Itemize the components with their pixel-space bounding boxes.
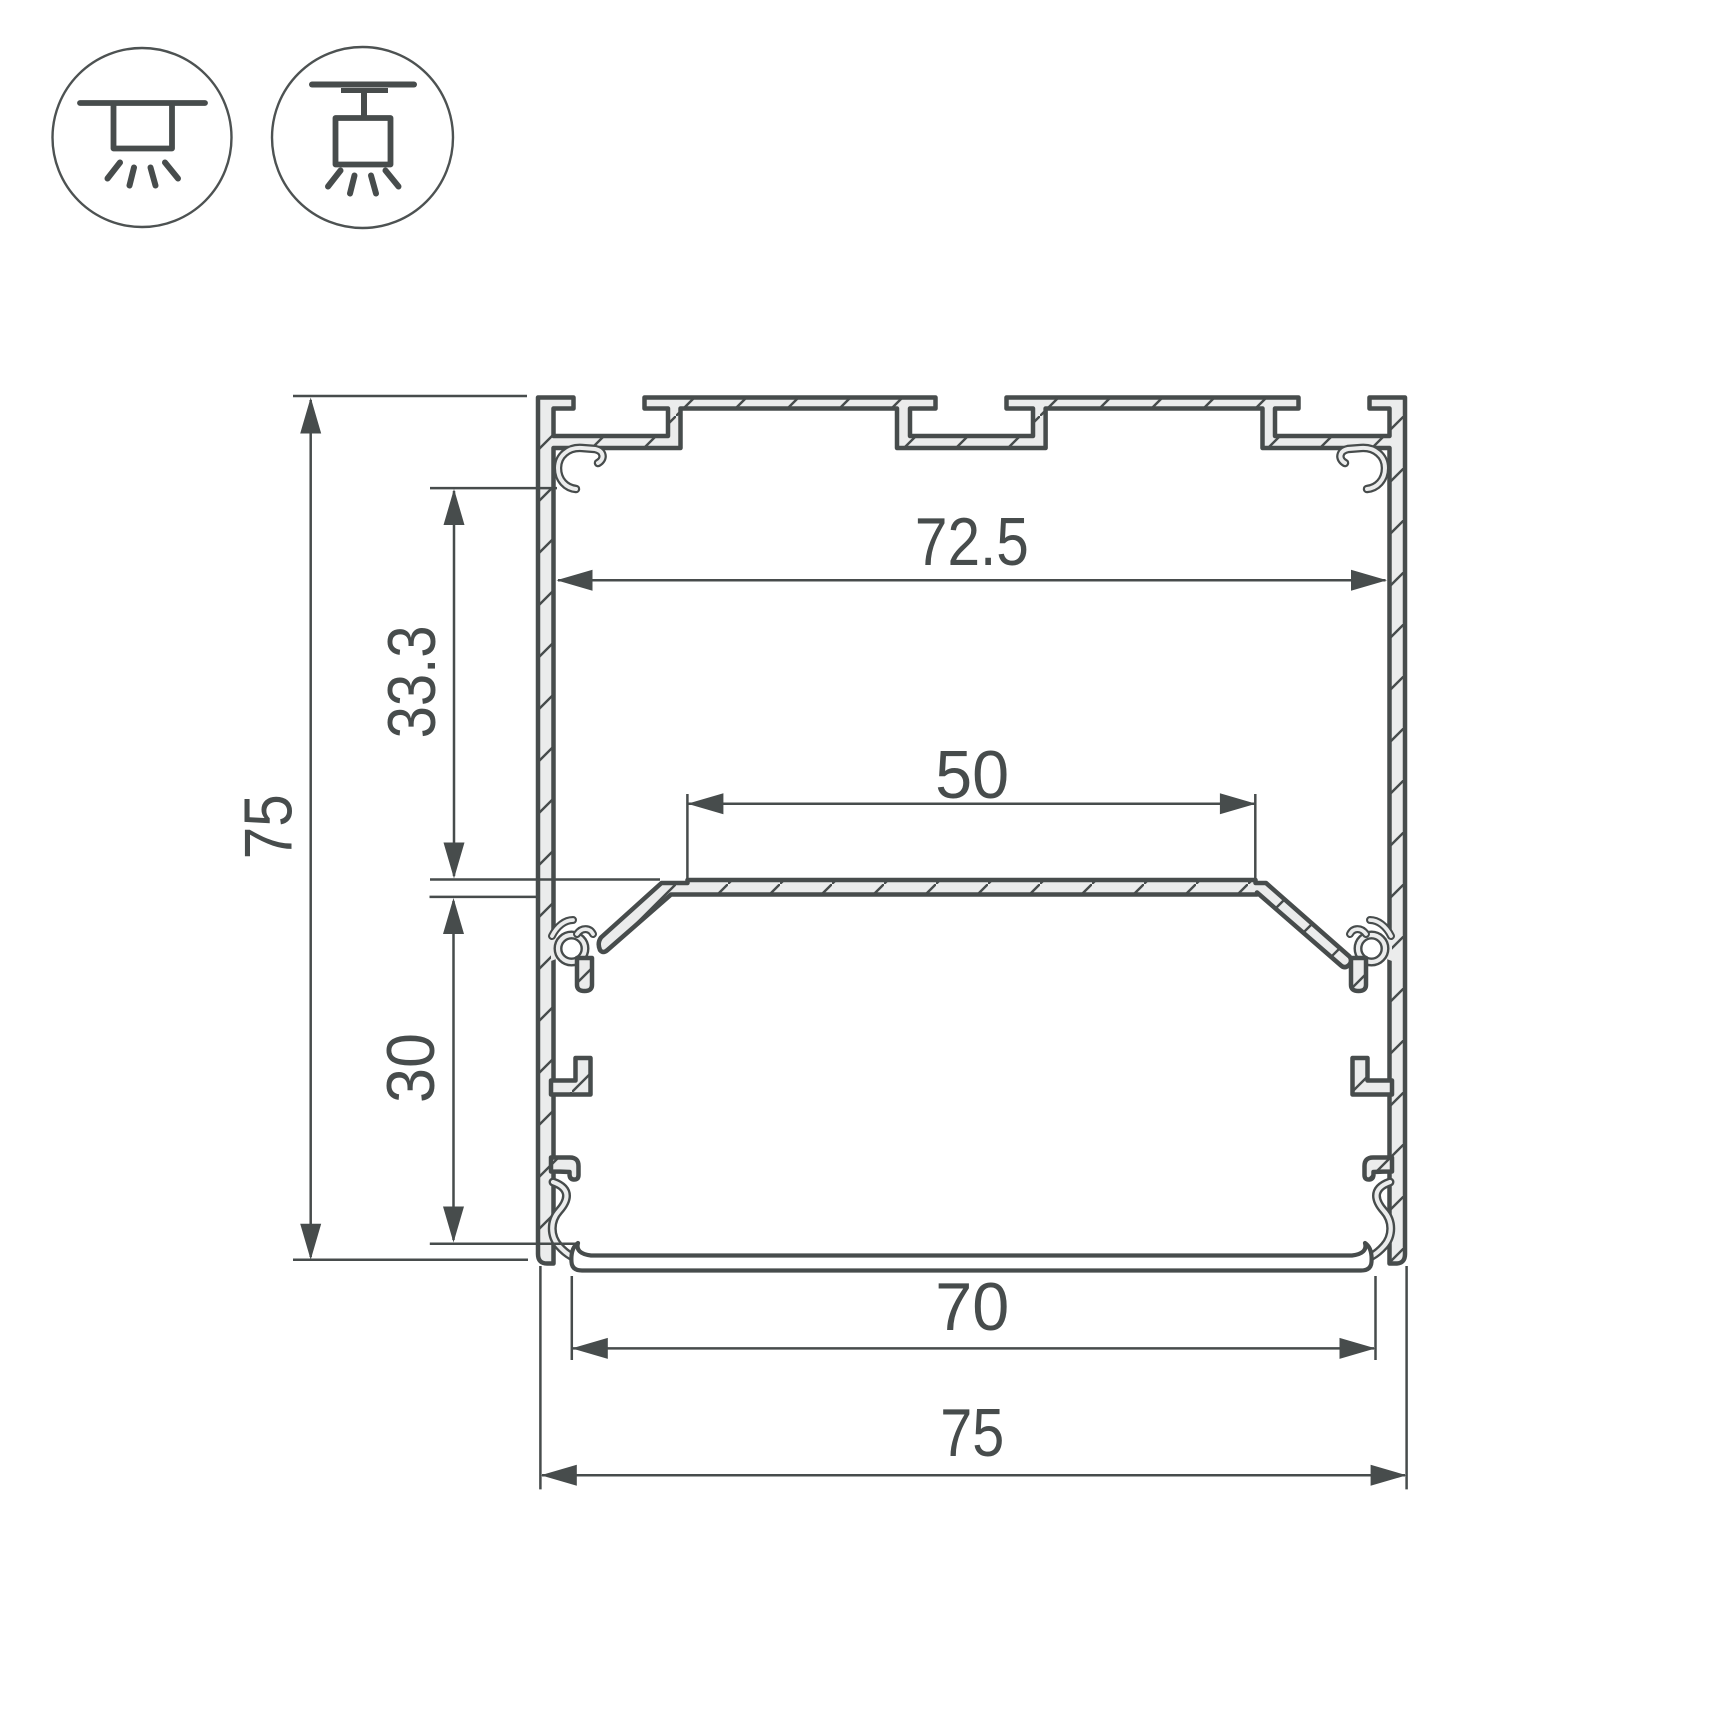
svg-text:33.3: 33.3 [374, 625, 450, 738]
svg-text:50: 50 [935, 737, 1009, 813]
svg-text:75: 75 [940, 1395, 1004, 1471]
svg-text:72.5: 72.5 [915, 504, 1029, 580]
svg-text:70: 70 [935, 1269, 1009, 1345]
svg-text:75: 75 [231, 794, 307, 859]
svg-text:30: 30 [373, 1033, 449, 1103]
